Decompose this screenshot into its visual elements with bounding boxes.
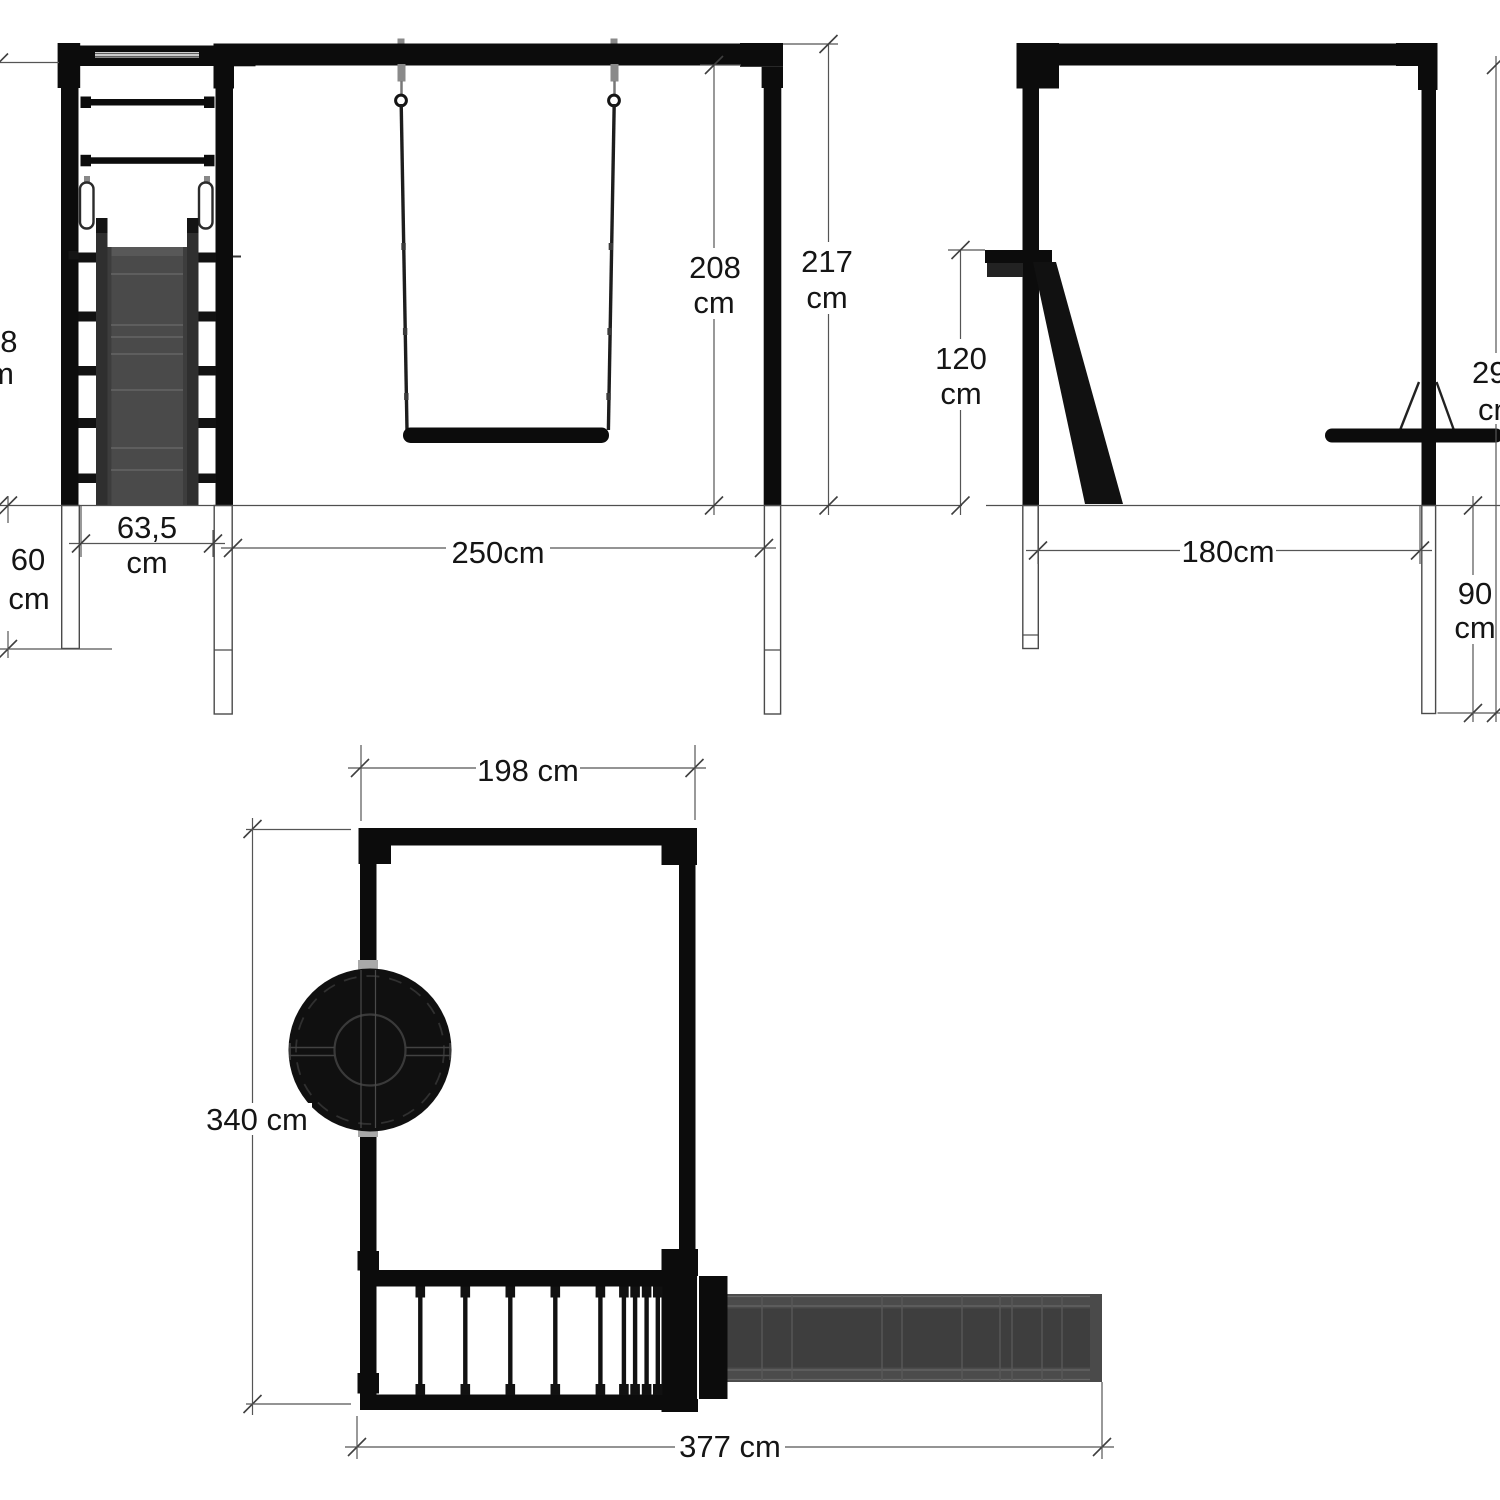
svg-text:cm: cm: [1454, 610, 1495, 645]
svg-text:208: 208: [689, 250, 741, 285]
svg-text:cm: cm: [806, 280, 847, 315]
svg-text:cm: cm: [126, 545, 167, 580]
svg-text:198 cm: 198 cm: [477, 753, 579, 788]
svg-text:60: 60: [11, 542, 45, 577]
svg-text:cm: cm: [693, 285, 734, 320]
svg-text:63,5: 63,5: [117, 510, 177, 545]
svg-text:290: 290: [1472, 355, 1500, 390]
svg-text:cm: cm: [0, 356, 14, 391]
svg-text:340 cm: 340 cm: [206, 1102, 308, 1137]
svg-text:377 cm: 377 cm: [679, 1429, 781, 1464]
svg-text:180cm: 180cm: [1181, 534, 1274, 569]
svg-text:cm: cm: [1478, 392, 1500, 427]
svg-text:217: 217: [801, 244, 853, 279]
svg-text:120: 120: [935, 341, 987, 376]
svg-text:cm: cm: [940, 376, 981, 411]
svg-text:90: 90: [1458, 576, 1492, 611]
svg-text:250cm: 250cm: [451, 535, 544, 570]
svg-text:248: 248: [0, 324, 18, 359]
svg-text:cm: cm: [8, 581, 49, 616]
